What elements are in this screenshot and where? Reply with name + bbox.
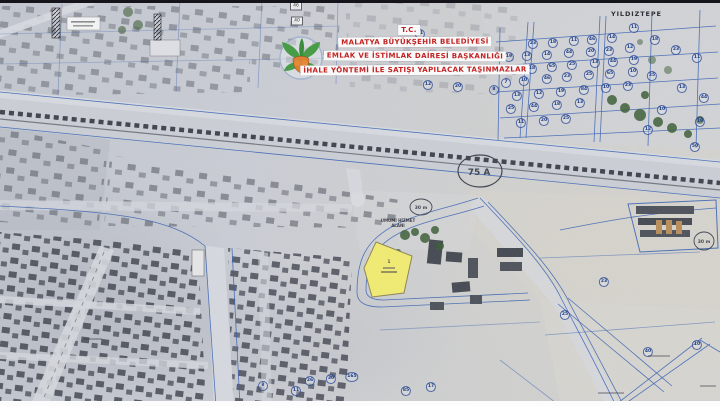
title-line-department: EMLAK VE İSTİMLAK DAİRESİ BAŞKANLIĞI xyxy=(324,51,507,62)
parcel-number-marker: 14 xyxy=(542,50,552,60)
zoning-area-label: UMUMİ HİZMET ALANI xyxy=(372,218,424,228)
parcel-number-marker: 26 xyxy=(305,376,315,386)
parcel-number-marker: 23 xyxy=(671,45,681,55)
parcel-number-marker: 8 xyxy=(489,85,499,95)
faint-annotation xyxy=(598,392,624,394)
scan-edge-top xyxy=(0,0,720,3)
parcel-number-marker: 65 xyxy=(605,69,615,79)
parcel-number-marker: 13 xyxy=(522,51,532,61)
parcel-number-marker: 12 xyxy=(423,80,433,90)
parcel-number-marker: 7 xyxy=(501,78,511,88)
parcel-number-marker: 8 xyxy=(258,381,268,391)
parcel-number-marker: 13 xyxy=(575,98,585,108)
parcel-number-marker: 30 xyxy=(326,374,336,384)
parcel-number-marker: 23 xyxy=(604,46,614,56)
parcel-number-marker: 18 xyxy=(548,38,558,48)
parcel-number-marker: 165 xyxy=(345,372,358,382)
parcel-number-marker: 10 xyxy=(519,76,529,86)
parcel-number-marker: 14 xyxy=(607,33,617,43)
parcel-number-marker: 12 xyxy=(643,125,653,135)
parcel-number-marker: 11 xyxy=(291,386,301,396)
parcel-number-marker: 44 xyxy=(608,57,618,67)
parcel-number-marker: 20 xyxy=(453,82,463,92)
parcel-number-marker: 23 xyxy=(623,81,633,91)
parcel-number-marker: 23 xyxy=(599,277,609,287)
parcel-number-marker: 44 xyxy=(699,93,709,103)
faint-annotation xyxy=(84,338,102,340)
faint-annotation xyxy=(648,355,670,357)
parcel-number-marker: 25 xyxy=(567,60,577,70)
title-line-municipality: MALATYA BÜYÜKŞEHİR BELEDİYESİ xyxy=(338,36,492,47)
parcel-number-marker: 85 xyxy=(401,386,411,396)
title-line-subject: İHALE YÖNTEMİ İLE SATIŞI YAPILACAK TAŞIN… xyxy=(300,64,529,75)
parcel-markers-layer: 2318114614191314442023121118652513441971… xyxy=(0,0,720,406)
parcel-box-marker: 40 xyxy=(291,17,303,26)
scan-edge-bottom xyxy=(0,401,720,406)
parcel-number-marker: 12 xyxy=(534,89,544,99)
region-label: YILDIZTEPE xyxy=(611,10,662,18)
parcel-number-marker: 19 xyxy=(695,117,705,127)
parcel-number-marker: 44 xyxy=(529,102,539,112)
parcel-number-marker: 84 xyxy=(579,85,589,95)
parcel-number-marker: 13 xyxy=(590,58,600,68)
parcel-number-marker: 44 xyxy=(564,48,574,58)
parcel-number-marker: 10 xyxy=(692,340,702,350)
parcel-number-marker: 46 xyxy=(587,35,597,45)
parcel-number-marker: 19 xyxy=(556,87,566,97)
parcel-number-marker: 17 xyxy=(426,382,436,392)
parcel-number-marker: 25 xyxy=(561,114,571,124)
parcel-number-marker: 10 xyxy=(628,67,638,77)
parcel-number-marker: 65 xyxy=(547,62,557,72)
parcel-number-marker: 50 xyxy=(690,142,700,152)
parcel-number-marker: 23 xyxy=(562,72,572,82)
parcel-number-marker: 19 xyxy=(629,55,639,65)
title-line-tc: T.C. xyxy=(398,25,420,35)
parcel-number-marker: 46 xyxy=(542,74,552,84)
parcel-number-marker: 11 xyxy=(516,118,526,128)
parcel-number-marker: 25 xyxy=(584,70,594,80)
scanned-map-document: 1 75 A 30 m 30 m xyxy=(0,0,720,406)
parcel-number-marker: 23 xyxy=(528,39,538,49)
parcel-number-marker: 20 xyxy=(586,47,596,57)
parcel-number-marker: 13 xyxy=(677,83,687,93)
parcel-number-marker: 11 xyxy=(569,36,579,46)
parcel-number-marker: 11 xyxy=(692,53,702,63)
zoning-area-label-line2: ALANI xyxy=(372,223,424,228)
parcel-number-marker: 10 xyxy=(657,105,667,115)
faint-annotation xyxy=(700,385,716,387)
parcel-number-marker: 10 xyxy=(601,83,611,93)
parcel-number-marker: 18 xyxy=(552,100,562,110)
parcel-number-marker: 25 xyxy=(647,71,657,81)
parcel-number-marker: 13 xyxy=(512,91,522,101)
parcel-number-marker: 18 xyxy=(650,35,660,45)
parcel-number-marker: 25 xyxy=(560,310,570,320)
parcel-number-marker: 12 xyxy=(625,43,635,53)
parcel-number-marker: 20 xyxy=(539,116,549,126)
parcel-number-marker: 11 xyxy=(629,23,639,33)
parcel-number-marker: 25 xyxy=(506,104,516,114)
